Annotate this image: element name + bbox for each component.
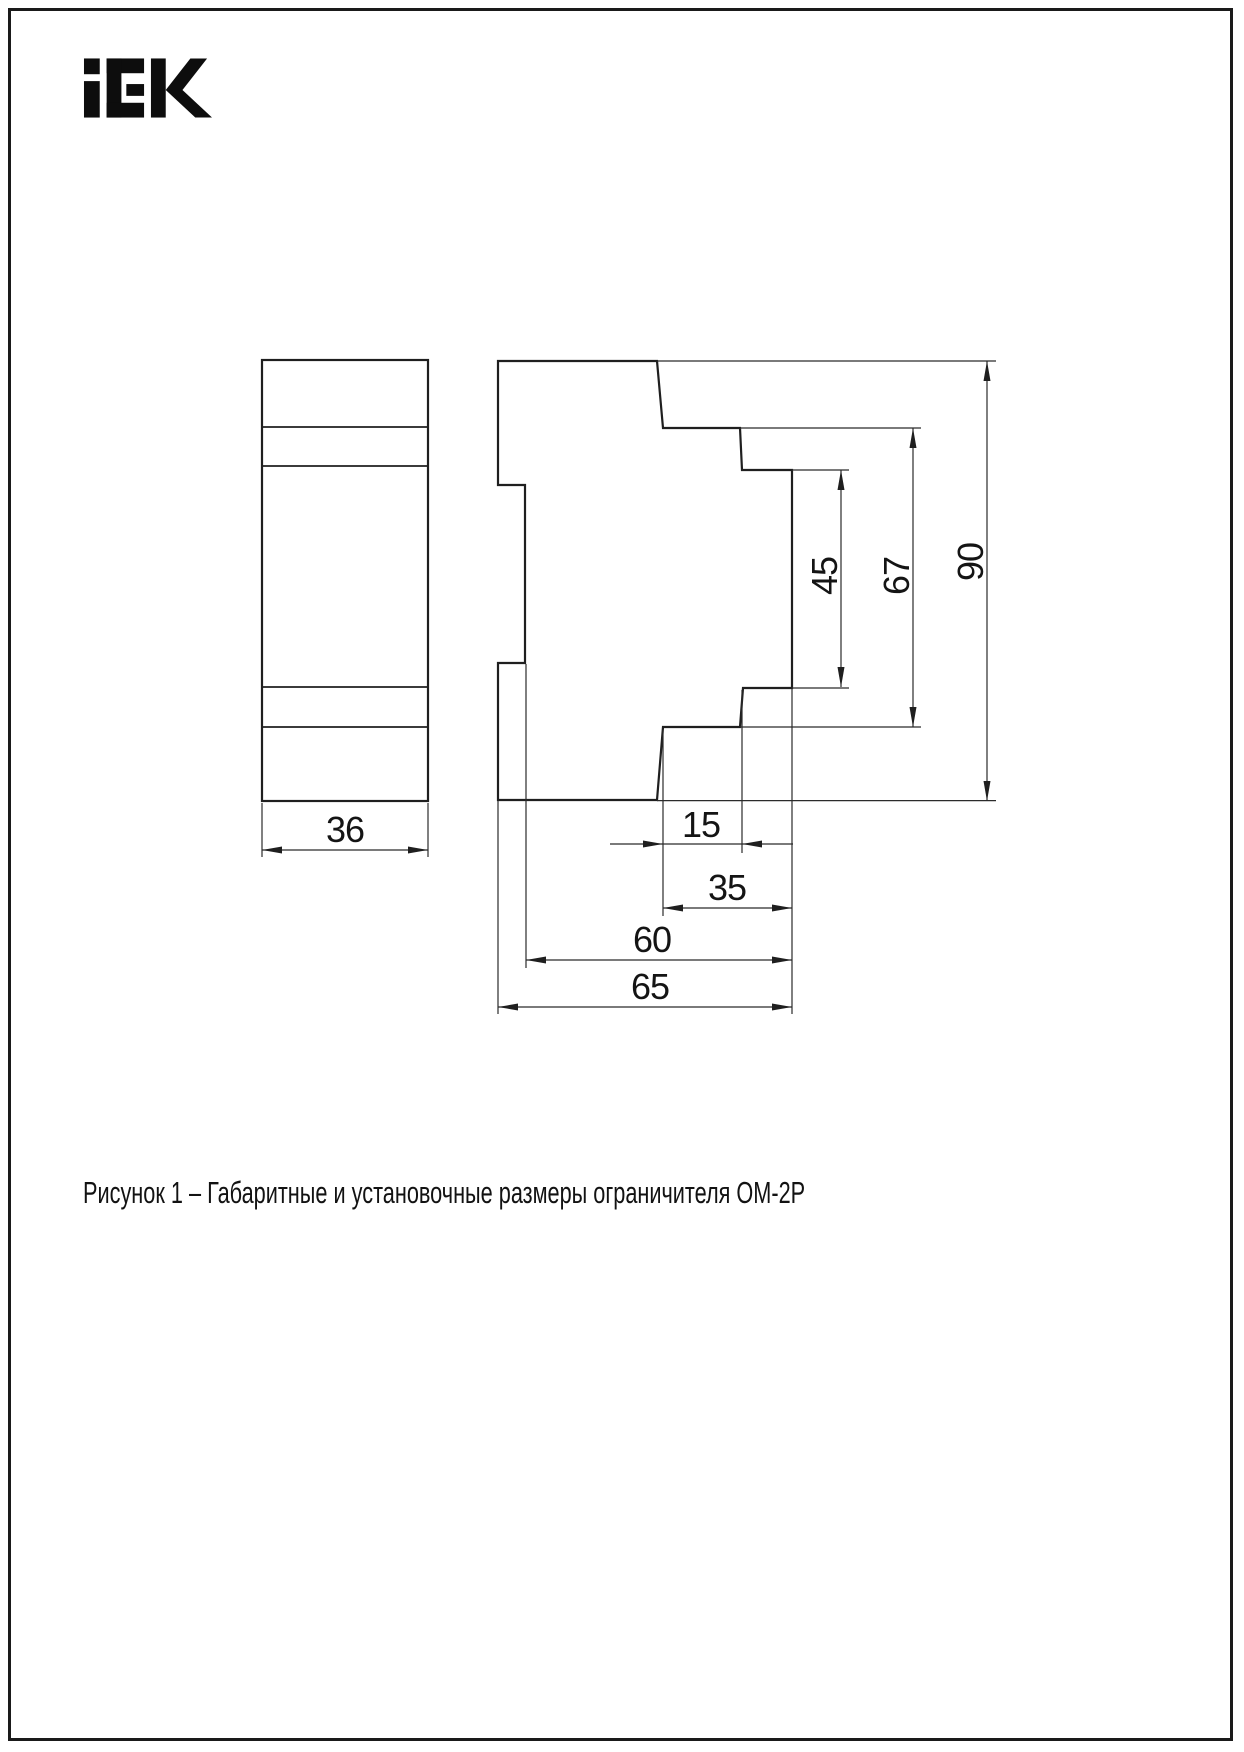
side-view-profile <box>498 361 792 800</box>
dim-label-65: 65 <box>631 966 669 1007</box>
arrow-icon <box>772 1004 792 1011</box>
arrow-icon <box>663 905 683 912</box>
arrow-icon <box>408 847 428 854</box>
dim-label-45: 45 <box>804 557 845 595</box>
dim-label-67: 67 <box>876 557 917 595</box>
dimension-lines <box>262 361 987 1007</box>
figure-caption: Рисунок 1 – Габаритные и установочные ра… <box>83 1176 805 1210</box>
arrow-icon <box>910 707 917 727</box>
arrow-icon <box>772 905 792 912</box>
arrow-icon <box>742 841 762 848</box>
dim-label-36: 36 <box>326 809 364 850</box>
arrow-icon <box>643 841 663 848</box>
arrow-icon <box>838 667 845 687</box>
arrow-icon <box>984 361 991 381</box>
arrow-icon <box>838 470 845 490</box>
arrow-icon <box>526 957 546 964</box>
arrow-icon <box>498 1004 518 1011</box>
arrow-icon <box>984 781 991 801</box>
technical-drawing: 36 15 35 60 65 45 67 90 <box>0 0 1244 1752</box>
dim-label-35: 35 <box>708 867 746 908</box>
arrow-icon <box>262 847 282 854</box>
dim-label-15: 15 <box>682 804 720 845</box>
front-view <box>262 360 428 801</box>
dimension-arrows <box>262 361 991 1011</box>
arrow-icon <box>772 957 792 964</box>
arrow-icon <box>910 428 917 448</box>
dim-label-90: 90 <box>950 543 991 581</box>
dim-label-60: 60 <box>633 919 671 960</box>
